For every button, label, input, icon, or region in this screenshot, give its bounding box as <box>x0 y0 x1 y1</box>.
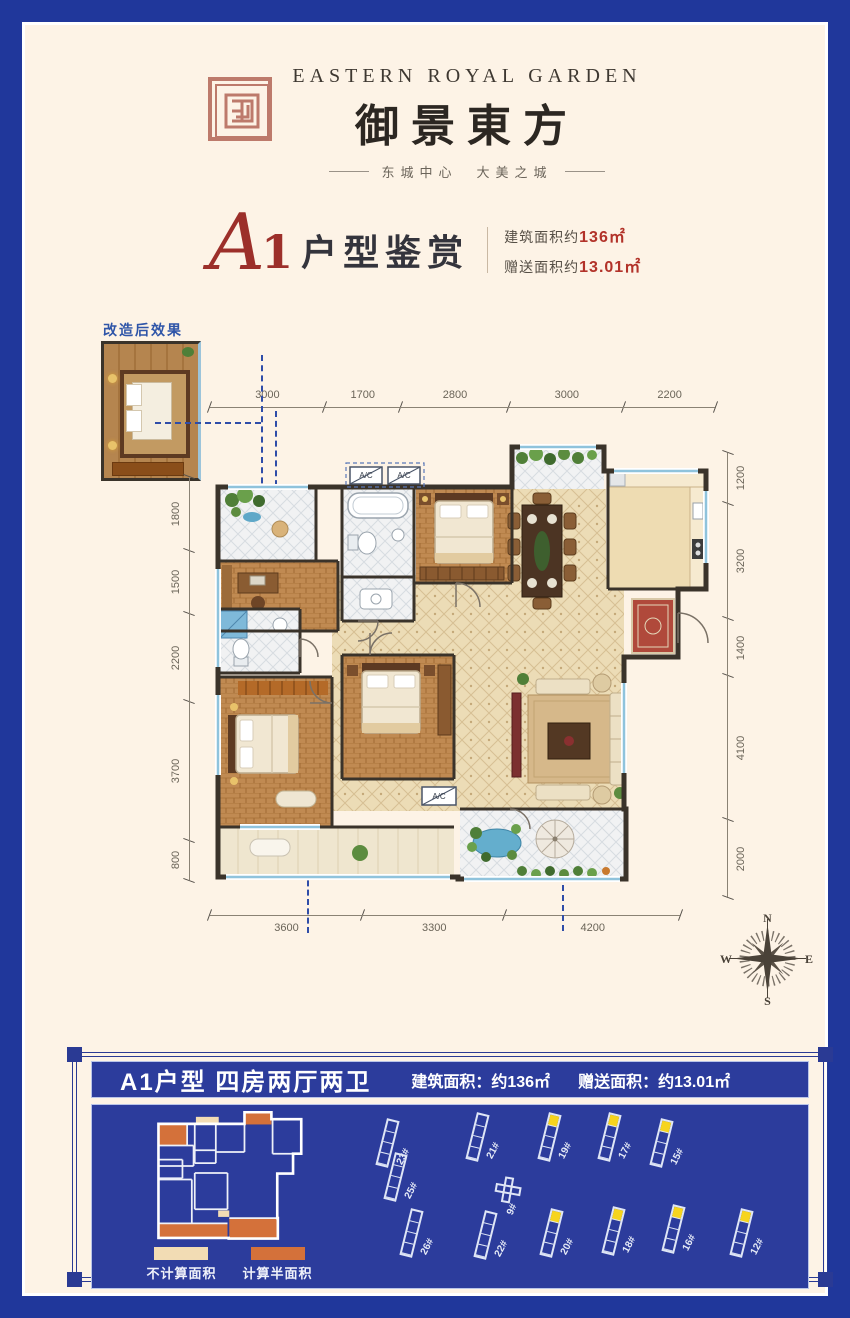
area-build-value: 136㎡ <box>579 229 626 246</box>
dim-segment: 3000 <box>210 385 325 413</box>
room-kitchen <box>608 471 706 589</box>
guide-line <box>155 422 261 424</box>
dim-segment: 2200 <box>624 385 715 413</box>
dim-segment: 4100 <box>722 676 750 820</box>
flyer-canvas: EASTERN ROYAL GARDEN 御景東方 东城中心 大美之城 A 1 … <box>22 22 828 1296</box>
room-bedroom-3 <box>342 655 454 779</box>
building-marker: 26# <box>399 1208 423 1258</box>
plan-label: 户型鉴赏 <box>301 224 469 276</box>
dim-label: 1200 <box>735 466 747 490</box>
entry-rug <box>632 599 674 653</box>
building-marker: 20# <box>539 1208 563 1258</box>
dim-segment: 1200 <box>722 453 750 504</box>
area-gift-label: 赠送面积约 <box>504 259 579 275</box>
dim-segment: 2200 <box>167 614 195 701</box>
room-garden-balcony-tl <box>220 487 316 561</box>
header: EASTERN ROYAL GARDEN 御景東方 东城中心 大美之城 <box>25 65 825 181</box>
brand-seal-icon <box>208 77 272 141</box>
dim-segment: 3300 <box>363 909 505 937</box>
panel-content: 不计算面积 计算半面积 23#21#19#17#15#25#9#26#22#20… <box>91 1104 809 1289</box>
plan-letter: A <box>209 213 265 273</box>
building-label: 12# <box>749 1237 767 1257</box>
inset-bed <box>120 370 190 458</box>
brand-tagline: 东城中心 大美之城 <box>329 162 604 181</box>
building-label: 16# <box>681 1233 699 1253</box>
dim-label: 3300 <box>422 922 446 934</box>
building-marker: 15# <box>649 1118 673 1168</box>
title-area-info: 建筑面积约136㎡ 赠送面积约13.01㎡ <box>504 223 641 277</box>
compass-e: E <box>805 952 813 966</box>
area-build-label: 建筑面积约 <box>504 229 579 245</box>
room-bath-2 <box>218 609 300 673</box>
building-label: 21# <box>485 1141 503 1161</box>
compass-w: W <box>720 952 732 966</box>
legend-swatch-uncounted <box>154 1247 208 1260</box>
dim-segment: 1500 <box>167 551 195 614</box>
area-gift-line: 赠送面积约13.01㎡ <box>504 253 641 277</box>
dim-segment: 1400 <box>722 619 750 676</box>
dim-segment: 3200 <box>722 504 750 619</box>
room-bath-1 <box>342 487 414 577</box>
panel-title: A1户型 四房两厅两卫 <box>120 1062 371 1097</box>
room-bedroom-top <box>416 487 512 583</box>
dim-ruler-left: 1800150022003700800 <box>167 477 195 880</box>
building-label: 22# <box>493 1239 511 1259</box>
dim-label: 3000 <box>555 389 579 401</box>
building-label: 9# <box>505 1202 520 1217</box>
building-marker: 22# <box>473 1210 497 1260</box>
dim-label: 1400 <box>735 635 747 659</box>
dim-segment: 1800 <box>167 477 195 551</box>
legend-item-half: 计算半面积 <box>243 1247 313 1282</box>
dim-segment: 3700 <box>167 702 195 841</box>
room-garden-balcony-bottom <box>460 809 626 879</box>
compass-s: S <box>764 994 771 1006</box>
building-marker: 21# <box>465 1112 489 1162</box>
plan-title: A 1 户型鉴赏 建筑面积约136㎡ 赠送面积约13.01㎡ <box>25 207 825 279</box>
building-label: 15# <box>669 1147 687 1167</box>
dim-label: 4100 <box>735 736 747 760</box>
brand-name-en: EASTERN ROYAL GARDEN <box>292 65 641 88</box>
dim-segment: 3000 <box>509 385 624 413</box>
building-label: 20# <box>559 1237 577 1257</box>
area-gift-value: 13.01㎡ <box>579 259 641 276</box>
compass-rose: N E S W <box>720 911 815 1011</box>
dim-label: 4200 <box>580 922 604 934</box>
inset-label: 改造后效果 <box>103 320 183 340</box>
dim-segment: 2800 <box>401 385 510 413</box>
dim-label: 800 <box>170 851 182 869</box>
area-build-line: 建筑面积约136㎡ <box>504 223 641 247</box>
dim-segment: 800 <box>167 841 195 880</box>
dim-ruler-top: 30001700280030002200 <box>210 385 715 413</box>
dim-label: 2000 <box>735 846 747 870</box>
building-label: 18# <box>621 1235 639 1255</box>
compass-n: N <box>763 911 772 925</box>
dim-segment: 4200 <box>505 909 680 937</box>
site-plan: 23#21#19#17#15#25#9#26#22#20#18#16#12# <box>367 1111 798 1282</box>
flyer-page: EASTERN ROYAL GARDEN 御景東方 东城中心 大美之城 A 1 … <box>0 0 850 1318</box>
title-divider <box>487 227 488 273</box>
dim-ruler-right: 12003200140041002000 <box>722 453 750 897</box>
unit-minimap: 不计算面积 计算半面积 <box>102 1111 357 1282</box>
panel-area-build: 建筑面积：约136㎡ <box>411 1068 550 1092</box>
svg-text:A/C: A/C <box>432 792 446 801</box>
svg-text:A/C: A/C <box>359 471 373 480</box>
dim-ruler-bottom: 360033004200 <box>210 909 680 937</box>
legend-swatch-half <box>251 1247 305 1260</box>
building-marker: 16# <box>661 1204 685 1254</box>
building-marker: 19# <box>537 1112 561 1162</box>
dim-label: 2200 <box>657 389 681 401</box>
building-label: 19# <box>557 1141 575 1161</box>
room-laundry <box>342 577 414 621</box>
minimap-area-fills <box>158 1112 277 1238</box>
plan-number: 1 <box>261 225 293 279</box>
dim-label: 3700 <box>170 759 182 783</box>
building-label: 17# <box>617 1141 635 1161</box>
floorplan: A/C A/C A/C <box>210 443 715 906</box>
dim-segment: 2000 <box>722 820 750 897</box>
dim-label: 3600 <box>274 922 298 934</box>
dim-segment: 3600 <box>210 909 363 937</box>
dim-segment: 1700 <box>325 385 401 413</box>
dim-label: 2200 <box>170 646 182 670</box>
inset-bedroom-render <box>101 341 201 481</box>
bottom-panel: A1户型 四房两厅两卫 建筑面积：约136㎡ 赠送面积：约13.01㎡ <box>67 1047 833 1287</box>
building-marker: 17# <box>597 1112 621 1162</box>
building-marker: 9# <box>493 1175 523 1205</box>
dim-label: 3000 <box>255 389 279 401</box>
dim-label: 3200 <box>735 549 747 573</box>
building-marker: 18# <box>601 1206 625 1256</box>
room-balcony-bottom-left <box>218 827 454 877</box>
dim-label: 1800 <box>170 502 182 526</box>
building-label: 26# <box>419 1237 437 1257</box>
brand-name-cn: 御景東方 <box>355 90 579 154</box>
dim-label: 1700 <box>350 389 374 401</box>
parasol-icon <box>536 820 574 858</box>
svg-text:A/C: A/C <box>397 471 411 480</box>
panel-titlebar: A1户型 四房两厅两卫 建筑面积：约136㎡ 赠送面积：约13.01㎡ <box>91 1061 809 1098</box>
legend: 不计算面积 计算半面积 <box>146 1247 312 1282</box>
building-label: 25# <box>403 1181 421 1201</box>
legend-item-uncounted: 不计算面积 <box>146 1247 216 1282</box>
room-garden-strip-top <box>512 447 604 489</box>
building-marker: 12# <box>729 1208 753 1258</box>
panel-area-gift: 赠送面积：约13.01㎡ <box>578 1068 730 1092</box>
room-master-bedroom <box>218 677 332 827</box>
dim-label: 2800 <box>443 389 467 401</box>
dim-label: 1500 <box>170 570 182 594</box>
